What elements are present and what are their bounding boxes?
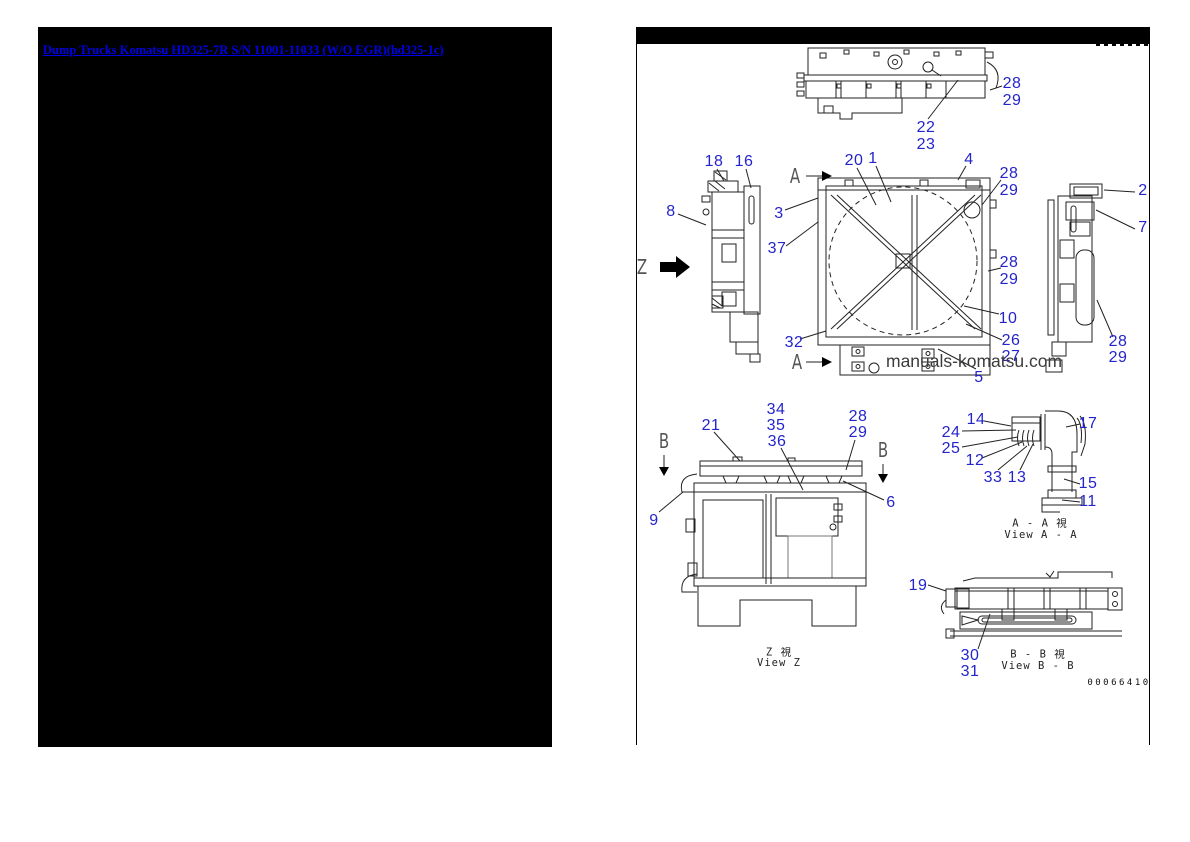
part-callout: 29 <box>849 425 868 441</box>
part-callout: 12 <box>966 453 985 469</box>
part-callout: 16 <box>735 154 754 170</box>
part-callout: 31 <box>961 664 980 680</box>
part-callout: 5 <box>974 370 983 386</box>
z-view-bottom <box>659 432 884 626</box>
part-callout: 22 <box>917 120 936 136</box>
page-border-right <box>1149 27 1150 745</box>
part-callout: 29 <box>1003 93 1022 109</box>
part-callout: 14 <box>967 412 986 428</box>
part-callout: 24 <box>942 425 961 441</box>
page-border-left <box>636 27 637 745</box>
part-callout: 28 <box>1000 166 1019 182</box>
perforation-dashes <box>1096 44 1148 46</box>
part-callout: 28 <box>1003 76 1022 92</box>
part-callout: 1 <box>868 151 877 167</box>
left-page-black-panel: Dump Trucks Komatsu HD325-7R S/N 11001-1… <box>38 27 552 747</box>
part-callout: 34 <box>767 402 786 418</box>
part-callout: 17 <box>1079 416 1098 432</box>
section-marker-a-top: A <box>790 166 800 186</box>
part-callout: 28 <box>849 409 868 425</box>
part-callout: 35 <box>767 418 786 434</box>
part-callout: 32 <box>785 335 804 351</box>
radiator-top-view <box>797 48 1002 119</box>
part-callout: 26 <box>1002 333 1021 349</box>
part-callout: 36 <box>768 434 787 450</box>
part-callout: 9 <box>649 513 658 529</box>
part-callout: 23 <box>917 137 936 153</box>
caption-aa-view-en: View A - A <box>1004 529 1077 541</box>
part-callout: 28 <box>1109 334 1128 350</box>
part-callout: 37 <box>768 241 787 257</box>
radiator-front-view <box>785 166 1002 375</box>
bb-view <box>928 571 1122 649</box>
part-callout: 8 <box>666 204 675 220</box>
part-callout: 2 <box>1138 183 1147 199</box>
part-callout: 29 <box>1109 350 1128 366</box>
page-top-bar <box>637 27 1150 44</box>
catalog-model-link[interactable]: Dump Trucks Komatsu HD325-7R S/N 11001-1… <box>43 43 444 58</box>
drawing-number: 00066410 <box>1087 678 1150 688</box>
section-marker-b-right: B <box>878 440 888 460</box>
part-callout: 28 <box>1000 255 1019 271</box>
part-callout: 10 <box>999 311 1018 327</box>
part-callout: 13 <box>1008 470 1027 486</box>
part-callout: 3 <box>774 206 783 222</box>
parts-catalog-page: { "colors": { "callout_blue": "#2424cc",… <box>0 0 1190 842</box>
part-callout: 21 <box>702 418 721 434</box>
part-callout: 15 <box>1079 476 1098 492</box>
section-marker-a-bottom: A <box>792 352 802 372</box>
part-callout: 30 <box>961 648 980 664</box>
section-marker-z: Z <box>637 257 647 277</box>
part-callout: 7 <box>1138 220 1147 236</box>
caption-bb-view-en: View B - B <box>1001 660 1074 672</box>
z-direction-arrow <box>660 256 690 278</box>
part-callout: 20 <box>845 153 864 169</box>
part-callout: 25 <box>942 441 961 457</box>
part-callout: 33 <box>984 470 1003 486</box>
part-callout: 4 <box>964 152 973 168</box>
part-callout: 6 <box>886 495 895 511</box>
part-callout: 19 <box>909 578 928 594</box>
section-marker-b-left: B <box>659 431 669 451</box>
watermark-text: manuals-komatsu.com <box>886 351 1062 372</box>
part-callout: 18 <box>705 154 724 170</box>
part-callout: 29 <box>1000 183 1019 199</box>
part-callout: 29 <box>1000 272 1019 288</box>
part-callout: 11 <box>1079 494 1097 510</box>
radiator-left-side-view <box>678 169 760 362</box>
caption-z-view-en: View Z <box>757 657 801 669</box>
